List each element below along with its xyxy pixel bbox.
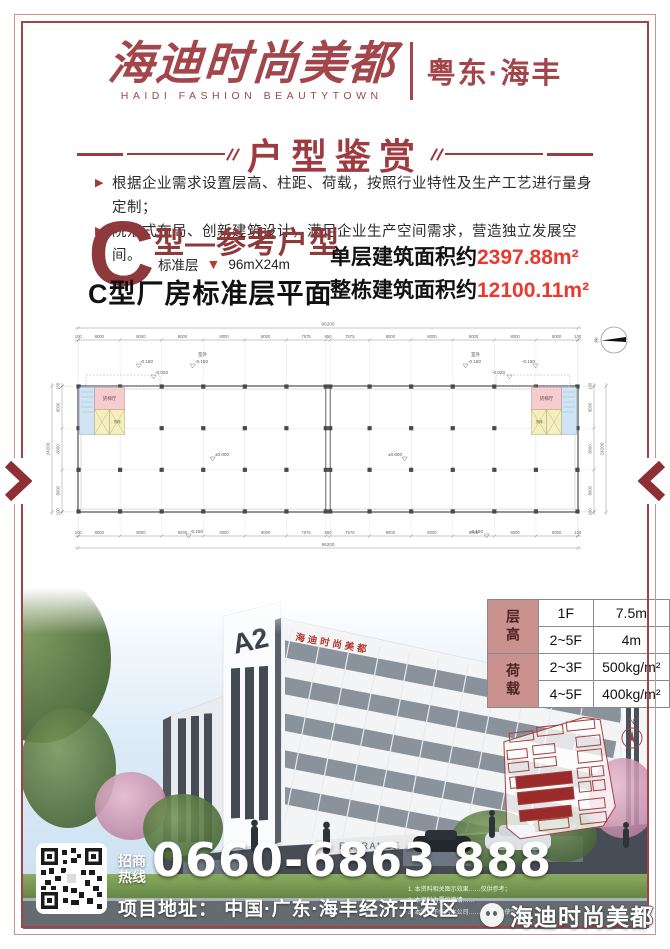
dim-label: 8000 — [469, 334, 479, 339]
core-right: 货梯厅 货梯 — [532, 388, 577, 435]
lift-label: 货梯 — [113, 419, 121, 424]
plan-title: C型厂房标准层平面 — [88, 272, 333, 311]
stair-room — [562, 388, 577, 435]
column — [284, 384, 288, 388]
spec-cell: 4~5F — [539, 681, 594, 708]
brand-watermark: 海迪时尚美都 — [480, 898, 654, 932]
brand-name-cn: 海迪时尚美都 — [106, 40, 397, 86]
elevation-marks: -0.150 室外 -0.150 -0.020 室外 -0.150 -0.150… — [136, 351, 538, 538]
canopy-left — [86, 375, 160, 386]
column — [367, 509, 371, 513]
column — [243, 468, 247, 472]
dim-label: 100 — [574, 530, 582, 535]
dim-label: 8000 — [427, 334, 437, 339]
plan-outer-wall — [78, 386, 578, 512]
column — [160, 468, 164, 472]
column — [492, 468, 496, 472]
column — [367, 426, 371, 430]
dim-label: 8000 — [95, 530, 105, 535]
tower-pilaster — [275, 618, 281, 844]
dim-label: 8000 — [588, 444, 593, 454]
spec-cell: 2~5F — [539, 627, 594, 654]
north-compass-icon: 北 — [593, 327, 627, 353]
column — [201, 426, 205, 430]
column — [118, 509, 122, 513]
qr-pattern — [41, 848, 102, 909]
canopy-right — [496, 375, 570, 386]
dim-label: 100 — [56, 382, 61, 390]
dim-label: 8000 — [95, 334, 105, 339]
dim-label: 8000 — [588, 402, 593, 412]
unit-size: 96mX24m — [228, 257, 290, 272]
watermark-text: 海迪时尚美都 — [510, 898, 654, 932]
column — [328, 468, 332, 472]
dim-label: 8000 — [510, 334, 520, 339]
column — [367, 384, 371, 388]
dim-label: 7575 — [301, 334, 311, 339]
header: 海迪时尚美都 HAIDI FASHION BEAUTYTOWN 粤东·海丰 — [0, 40, 670, 102]
qr-code — [36, 843, 107, 914]
bullet-triangle-icon: ▶ — [95, 173, 104, 194]
dim-label: 8000 — [56, 402, 61, 412]
column — [367, 468, 371, 472]
dim-label: 8000 — [136, 334, 146, 339]
minimap-north-icon: N — [622, 719, 642, 748]
banner-deco-left — [77, 148, 237, 161]
svg-text:±0.000: ±0.000 — [388, 452, 402, 457]
column — [243, 426, 247, 430]
left-chevron-icon — [2, 458, 32, 509]
plan-inner-wall — [81, 389, 575, 509]
freight-lobby-label: 货梯厅 — [103, 395, 117, 402]
column — [328, 384, 332, 388]
column — [451, 426, 455, 430]
dim-label: 8000 — [261, 334, 271, 339]
dim-total-label: 96200 — [322, 542, 335, 547]
dim-label: 850 — [325, 530, 333, 535]
column — [243, 384, 247, 388]
floor-plan-drawing: 9620010080008000800080008000757585075758… — [30, 314, 640, 560]
svg-text:-0.150: -0.150 — [522, 359, 535, 364]
column — [451, 509, 455, 513]
dim-label: 7575 — [345, 334, 355, 339]
dim-label: 100 — [75, 530, 83, 535]
lift-label: 货梯 — [535, 419, 543, 424]
spec-cell: 500kg/m² — [593, 654, 669, 681]
area-value: 2397.88m² — [477, 246, 579, 269]
phone-number: 0660-6863 888 — [152, 833, 552, 887]
area-value: 12100.11m² — [477, 279, 589, 302]
area-line: 整栋建筑面积约12100.11m² — [330, 275, 589, 308]
dim-label: 100 — [56, 508, 61, 516]
freight-lobby-label: 货梯厅 — [540, 395, 554, 402]
column — [492, 426, 496, 430]
svg-text:-0.020: -0.020 — [155, 370, 168, 375]
svg-text:N: N — [629, 719, 634, 726]
column — [575, 468, 579, 472]
column — [324, 426, 328, 430]
column — [324, 509, 328, 513]
column — [160, 426, 164, 430]
core-left: 货梯厅 货梯 — [80, 388, 125, 435]
right-chevron-icon — [638, 458, 668, 509]
column — [451, 468, 455, 472]
column — [409, 468, 413, 472]
svg-text:室外: 室外 — [471, 351, 481, 358]
unit-type-subtitle: 标准层 ▼ 96mX24m — [158, 254, 290, 274]
column — [201, 384, 205, 388]
svg-text:-0.150: -0.150 — [140, 359, 153, 364]
dim-label: 8000 — [261, 530, 271, 535]
dim-label: 8000 — [219, 530, 229, 535]
column — [284, 468, 288, 472]
column — [160, 384, 164, 388]
spec-table: 层高 1F 7.5m 2~5F 4m 荷载 2~3F 500kg/m² 4~5F… — [487, 599, 670, 708]
dim-label: 8000 — [386, 334, 396, 339]
site-plan-minimap: N — [492, 712, 650, 849]
column — [76, 509, 80, 513]
svg-text:-0.150: -0.150 — [190, 529, 203, 534]
column — [328, 426, 332, 430]
svg-text:-0.150: -0.150 — [468, 359, 481, 364]
dim-total-label: 24200 — [46, 442, 51, 455]
dim-label: 8000 — [56, 485, 61, 495]
area-info: 单层建筑面积约2397.88m² 整栋建筑面积约12100.11m² — [330, 242, 589, 307]
floor-label: 标准层 — [158, 254, 199, 274]
column — [492, 509, 496, 513]
dim-label: 8000 — [552, 530, 562, 535]
dim-total-label: 24200 — [600, 442, 605, 455]
svg-text:-0.150: -0.150 — [195, 359, 208, 364]
dim-label: 100 — [588, 382, 593, 390]
dim-label: 100 — [574, 334, 582, 339]
spec-group-label: 荷载 — [488, 654, 539, 708]
dim-label: 8000 — [136, 530, 146, 535]
spec-cell: 400kg/m² — [593, 681, 669, 708]
dim-label: 8000 — [386, 530, 396, 535]
area-line: 单层建筑面积约2397.88m² — [330, 242, 589, 275]
svg-text:室外: 室外 — [198, 351, 208, 358]
dim-label: 8000 — [56, 444, 61, 454]
dim-label: 8000 — [178, 334, 188, 339]
dim-total-label: 96200 — [322, 322, 335, 327]
dim-label: 8000 — [552, 334, 562, 339]
dim-label: 8000 — [588, 485, 593, 495]
unit-type-section: C 型—参考户型 标准层 ▼ 96mX24m C型厂房标准层平面 单层建筑面积约… — [88, 214, 608, 306]
dim-label: 7575 — [301, 530, 311, 535]
column — [451, 384, 455, 388]
column — [76, 468, 80, 472]
spec-cell: 4m — [593, 627, 669, 654]
region-label: 粤东·海丰 — [427, 50, 563, 92]
column — [534, 509, 538, 513]
column — [284, 509, 288, 513]
column — [201, 468, 205, 472]
column — [409, 384, 413, 388]
table-row: 层高 1F 7.5m — [488, 600, 670, 627]
dim-label: 8000 — [427, 530, 437, 535]
column — [328, 509, 332, 513]
wechat-icon — [480, 903, 504, 927]
flyer-page: 海迪时尚美都 HAIDI FASHION BEAUTYTOWN 粤东·海丰 户型… — [0, 0, 670, 949]
column — [409, 426, 413, 430]
down-triangle-icon: ▼ — [207, 256, 221, 272]
column — [534, 468, 538, 472]
stair-room — [80, 388, 95, 435]
spec-cell: 2~3F — [539, 654, 594, 681]
spec-cell: 1F — [539, 600, 594, 627]
dim-label: 100 — [588, 508, 593, 516]
brand-logo: 海迪时尚美都 HAIDI FASHION BEAUTYTOWN — [108, 40, 396, 102]
column — [201, 509, 205, 513]
banner-deco-right — [433, 148, 593, 161]
column — [243, 509, 247, 513]
dim-label: 850 — [325, 334, 333, 339]
spec-cell: 7.5m — [593, 600, 669, 627]
dim-label: 100 — [75, 334, 83, 339]
spec-group-label: 层高 — [488, 600, 539, 654]
column — [324, 384, 328, 388]
column — [324, 468, 328, 472]
column — [160, 509, 164, 513]
column — [284, 426, 288, 430]
table-row: 荷载 2~3F 500kg/m² — [488, 654, 670, 681]
column — [409, 509, 413, 513]
dim-label: 7575 — [345, 530, 355, 535]
svg-text:-0.020: -0.020 — [492, 370, 505, 375]
dim-label: 8000 — [219, 334, 229, 339]
logo-divider — [410, 42, 413, 100]
svg-text:北: 北 — [593, 337, 598, 344]
project-address: 项目地址： 中国·广东·海丰经济开发区 — [118, 894, 459, 921]
dim-label: 8000 — [510, 530, 520, 535]
brand-name-en: HAIDI FASHION BEAUTYTOWN — [108, 90, 396, 102]
svg-text:±0.000: ±0.000 — [215, 452, 229, 457]
tower-window-strips — [231, 666, 268, 821]
svg-text:-0.150: -0.150 — [470, 529, 483, 534]
column — [575, 509, 579, 513]
column — [118, 468, 122, 472]
hotline-label: 招商 热线 — [118, 853, 146, 885]
